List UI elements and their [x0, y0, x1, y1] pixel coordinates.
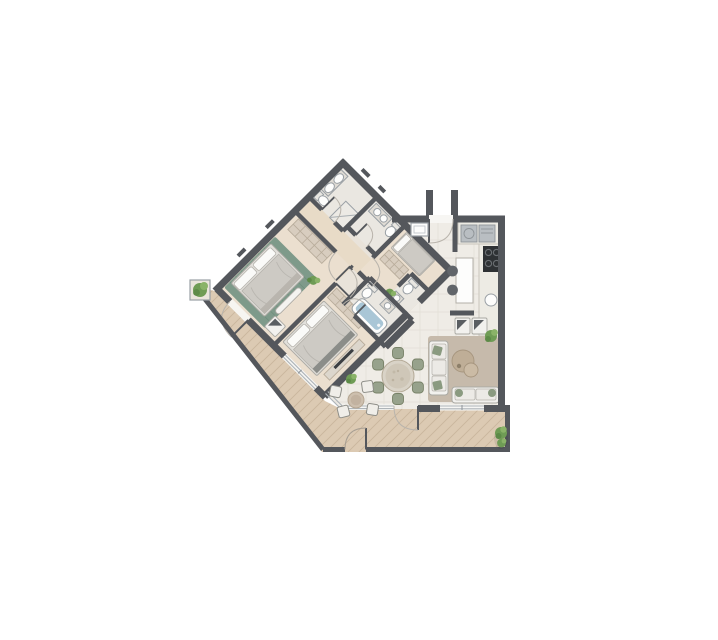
floor-plan — [0, 0, 718, 640]
dining-table-inner — [386, 364, 411, 389]
kitchen-island — [456, 258, 473, 303]
throw-pillow — [455, 389, 463, 397]
coffee-table-nest — [464, 363, 478, 377]
outdoor-pouf-top — [351, 395, 362, 406]
stool-icon — [447, 266, 458, 277]
floor-plan-canvas — [0, 0, 718, 640]
appliance-icon — [461, 225, 477, 242]
hatch-line — [484, 150, 718, 470]
plant-icon — [494, 426, 508, 449]
sofa-cushion — [432, 360, 446, 375]
hatch-line — [495, 150, 718, 470]
entry-threshold — [429, 215, 453, 223]
chair-icon — [412, 382, 423, 393]
outdoor-stool — [337, 405, 350, 418]
chair-icon — [412, 359, 423, 370]
shaft — [411, 223, 428, 236]
chair-icon — [373, 359, 384, 370]
chair-icon — [393, 394, 404, 405]
table-decor-icon — [457, 364, 461, 368]
hatch-line — [506, 150, 718, 470]
outdoor-stool — [366, 403, 379, 416]
throw-pillow — [432, 380, 443, 391]
appliance-icon — [479, 225, 495, 242]
throw-pillow — [488, 389, 496, 397]
chair-icon — [373, 382, 384, 393]
corner-planter — [190, 280, 210, 300]
kitchen-sink-icon — [485, 294, 497, 306]
outdoor-stool — [361, 380, 373, 392]
stool-icon — [447, 285, 458, 296]
chair-icon — [393, 348, 404, 359]
outdoor-stool — [329, 385, 342, 398]
